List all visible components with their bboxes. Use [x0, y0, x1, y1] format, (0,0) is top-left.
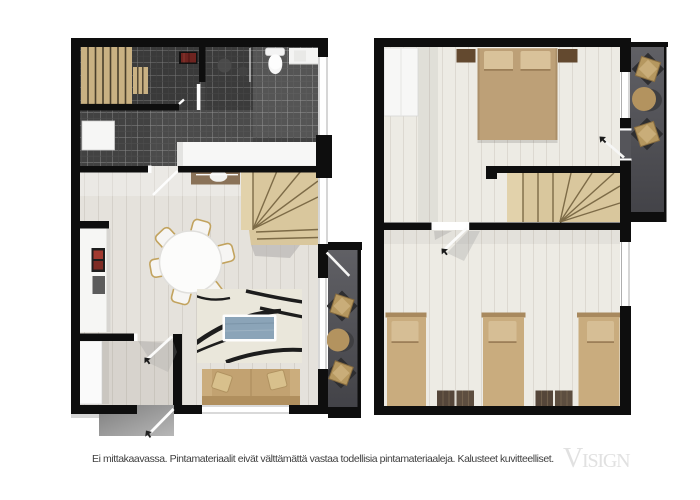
- svg-text:Visign: Visign: [563, 443, 630, 474]
- svg-text:Ei mittakaavassa. Pintamateria: Ei mittakaavassa. Pintamateriaalit eivät…: [92, 453, 554, 465]
